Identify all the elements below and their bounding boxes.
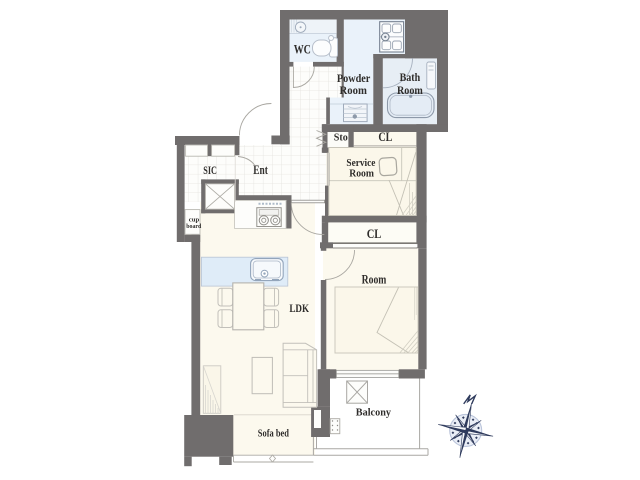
svg-text:Room: Room — [362, 273, 387, 287]
svg-text:WC: WC — [294, 42, 311, 57]
svg-text:Room: Room — [349, 168, 374, 179]
svg-text:Room: Room — [340, 85, 368, 97]
svg-text:CL: CL — [367, 227, 382, 241]
svg-text:Bath: Bath — [400, 72, 421, 84]
svg-text:board: board — [186, 223, 201, 230]
svg-text:Powder: Powder — [337, 73, 371, 85]
svg-text:SIC: SIC — [203, 165, 217, 177]
svg-text:Sofa bed: Sofa bed — [258, 429, 290, 440]
svg-text:CL: CL — [378, 130, 392, 144]
svg-text:Sto: Sto — [334, 133, 348, 144]
svg-text:LDK: LDK — [289, 301, 309, 315]
svg-text:Balcony: Balcony — [356, 408, 392, 419]
svg-text:Ent: Ent — [253, 163, 268, 177]
svg-text:Room: Room — [397, 85, 423, 97]
